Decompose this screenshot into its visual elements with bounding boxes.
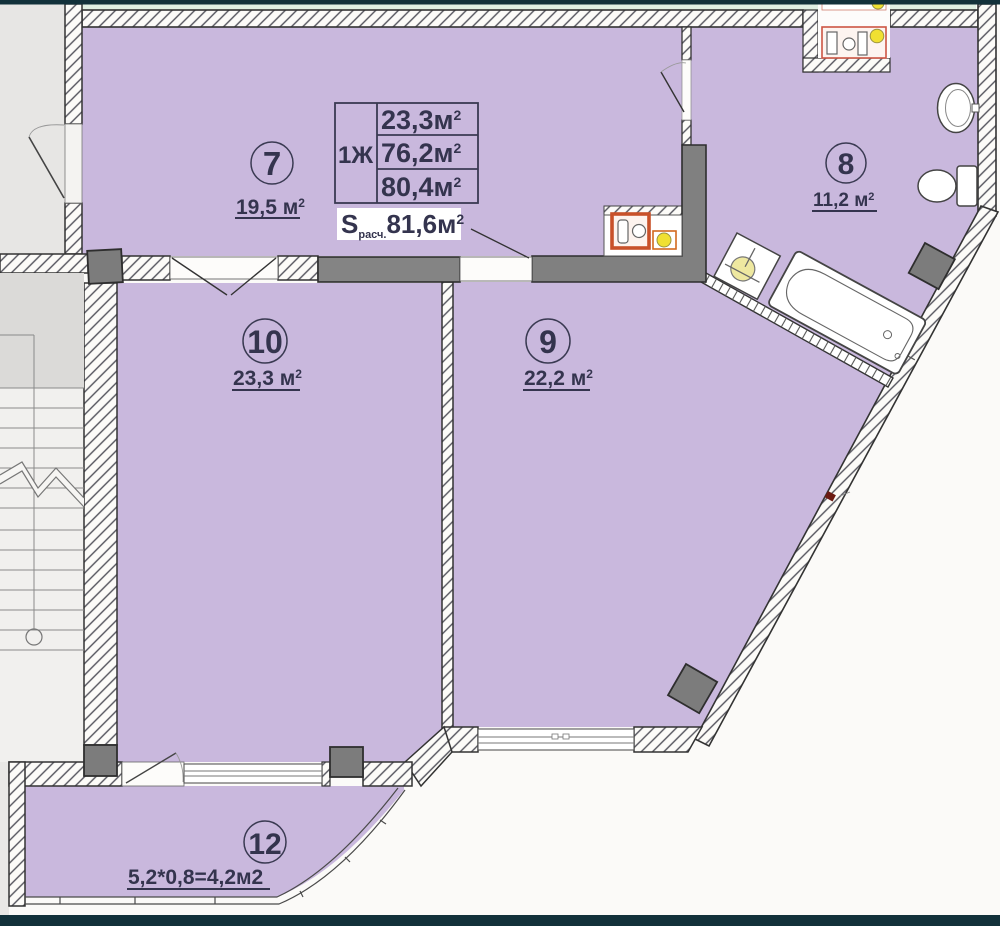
svg-text:19,5 м2: 19,5 м2 (236, 196, 305, 219)
svg-text:23,3м2: 23,3м2 (381, 105, 462, 135)
svg-text:8: 8 (838, 148, 855, 181)
svg-text:23,3 м2: 23,3 м2 (233, 367, 302, 390)
svg-text:22,2 м2: 22,2 м2 (524, 367, 593, 390)
svg-text:5,2*0,8=4,2м2: 5,2*0,8=4,2м2 (128, 866, 263, 889)
svg-text:11,2 м2: 11,2 м2 (813, 190, 874, 211)
svg-text:1Ж: 1Ж (338, 142, 373, 169)
svg-text:10: 10 (247, 324, 283, 360)
svg-text:76,2м2: 76,2м2 (381, 138, 462, 168)
svg-text:9: 9 (539, 324, 557, 360)
svg-text:12: 12 (248, 828, 281, 861)
svg-text:7: 7 (263, 145, 281, 182)
svg-text:80,4м2: 80,4м2 (381, 172, 462, 202)
